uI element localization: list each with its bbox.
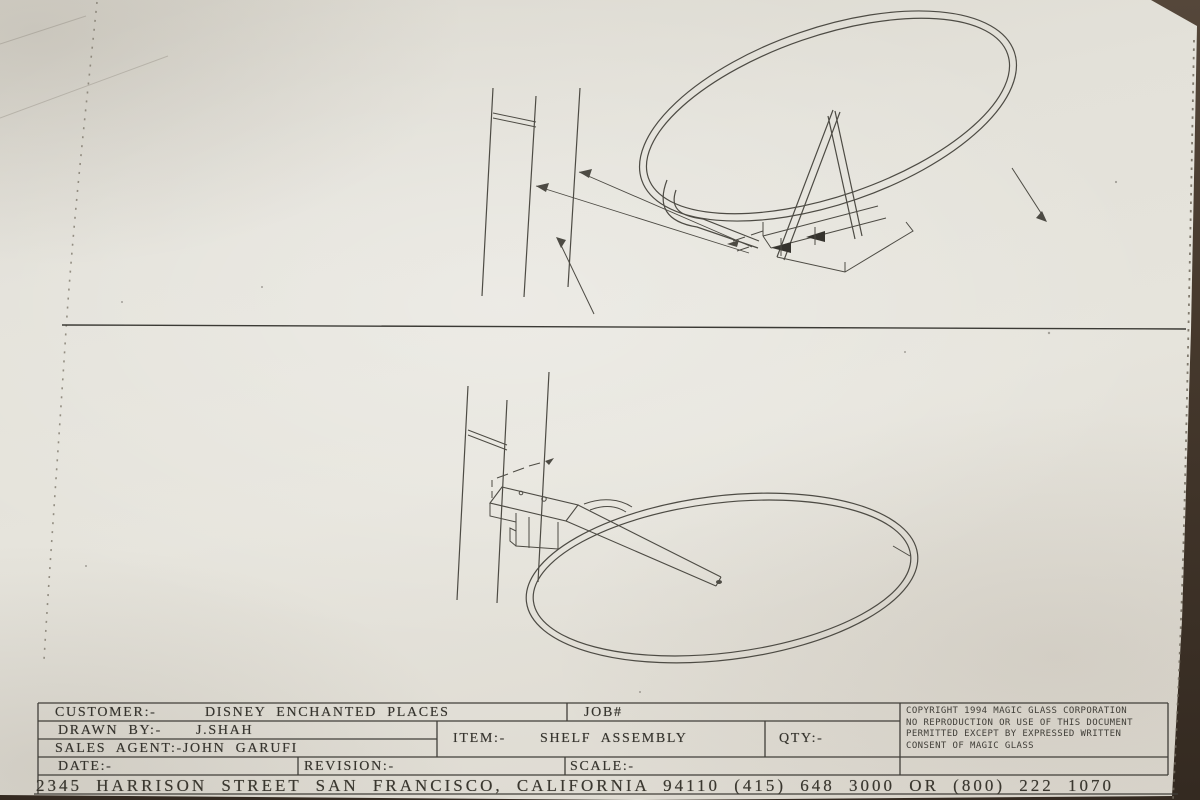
item-label: ITEM:-	[453, 731, 506, 747]
left-perforation-line	[44, 2, 97, 660]
drawn-by-label: DRAWN BY:-	[58, 723, 162, 739]
ring-seam	[893, 546, 910, 556]
customer-value: DISNEY ENCHANTED PLACES	[205, 705, 450, 721]
sales-agent-value: JOHN GARUFI	[183, 741, 298, 756]
drawn-by-value: J.SHAH	[196, 723, 253, 739]
item-value: SHELF ASSEMBLY	[540, 731, 688, 747]
shelf-ring-upper	[613, 0, 1043, 263]
upper-isometric-view	[482, 0, 1047, 314]
line-art-layer	[0, 0, 1200, 800]
sales-agent-label: SALES AGENT:-	[55, 741, 183, 756]
paper-specks	[85, 181, 1117, 693]
copyright-line: NO REPRODUCTION OR USE OF THIS DOCUMENT	[906, 718, 1164, 730]
qty-label: QTY:-	[779, 731, 824, 747]
revision-label: REVISION:-	[304, 759, 395, 775]
job-label: JOB#	[584, 705, 623, 721]
customer-label: CUSTOMER:-	[55, 705, 157, 721]
tapered-arm	[566, 500, 722, 586]
copyright-line: PERMITTED EXCEPT BY EXPRESSED WRITTEN	[906, 729, 1164, 741]
sales-agent-row: SALES AGENT:-JOHN GARUFI	[55, 741, 298, 757]
view-divider-line	[62, 325, 1186, 329]
wall-standard-upper	[482, 88, 580, 297]
paper-crease-lines	[0, 16, 168, 118]
copyright-line: COPYRIGHT 1994 MAGIC GLASS CORPORATION	[906, 706, 1164, 718]
date-label: DATE:-	[58, 759, 113, 775]
copyright-notice: COPYRIGHT 1994 MAGIC GLASS CORPORATION N…	[906, 706, 1164, 752]
copyright-line: CONSENT OF MAGIC GLASS	[906, 741, 1164, 753]
photographed-drawing-sheet: CUSTOMER:- DISNEY ENCHANTED PLACES JOB# …	[0, 0, 1200, 800]
shelf-ring-lower	[516, 473, 927, 684]
bolt-symbols	[772, 231, 825, 253]
company-address-line: 2345 HARRISON STREET SAN FRANCISCO, CALI…	[36, 776, 1114, 796]
leader-arrow-lower-left	[556, 237, 594, 314]
lower-isometric-view	[457, 372, 928, 683]
scale-label: SCALE:-	[570, 759, 635, 775]
leader-arrow-top-right	[1012, 168, 1047, 222]
projection-arrowheads-icon	[536, 169, 592, 192]
right-perforation-line	[1173, 40, 1194, 800]
